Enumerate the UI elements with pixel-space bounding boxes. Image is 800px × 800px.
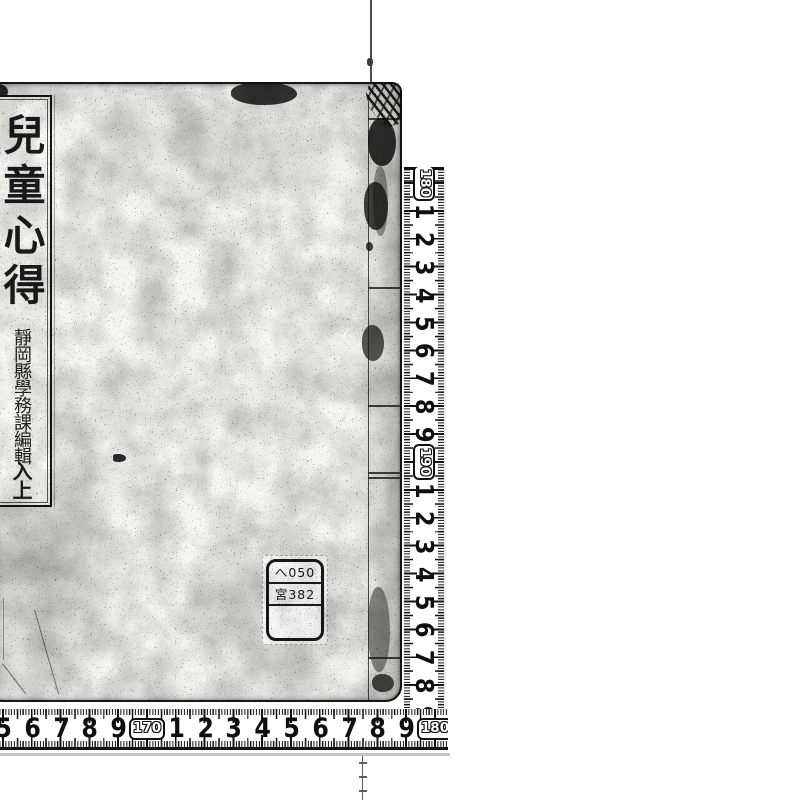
ink-smudge	[372, 674, 394, 692]
ink-smudge	[362, 325, 384, 361]
ruler-number: 2	[409, 505, 439, 530]
ruler-number: 180	[413, 167, 435, 201]
stitch-line	[368, 477, 402, 479]
scan-page: 兒童心得 靜岡縣學務課編輯 入上 へ050 宮382	[0, 0, 800, 800]
vertical-ruler: 180123456789190123456789	[404, 167, 444, 741]
registration-tick	[359, 762, 367, 764]
registration-tick	[359, 776, 367, 778]
ruler-number: 8	[363, 714, 391, 744]
ruler-number: 3	[409, 533, 439, 558]
ruler-number: 6	[409, 617, 439, 642]
ink-spot	[113, 454, 126, 462]
ruler-number: 4	[409, 561, 439, 586]
call-number-frame: へ050 宮382	[266, 559, 324, 641]
crease-line	[2, 663, 26, 694]
ruler-number: 4	[409, 282, 439, 307]
ruler-number: 2	[191, 714, 219, 744]
ruler-number: 6	[409, 338, 439, 363]
call-number-line2: 宮382	[269, 584, 321, 606]
book-cover: 兒童心得 靜岡縣學務課編輯 入上 へ050 宮382	[0, 82, 402, 702]
ruler-number: 5	[0, 714, 17, 744]
ink-smudge	[368, 587, 390, 672]
stain-patch	[54, 92, 364, 212]
crease-line	[34, 610, 60, 695]
ruler-number: 5	[409, 310, 439, 335]
stitch-line	[368, 405, 402, 407]
ruler-shadow-line	[0, 753, 450, 756]
imprint-text: 靜岡縣學務課編輯	[12, 328, 30, 464]
title-text: 兒童心得	[0, 113, 42, 313]
scan-noise-texture	[0, 82, 402, 702]
ruler-number: 6	[306, 714, 334, 744]
ruler-number: 8	[75, 714, 103, 744]
ruler-number: 8	[409, 394, 439, 419]
corner-scribble	[366, 82, 402, 128]
cover-fold-line	[54, 95, 55, 507]
call-number-line1: へ050	[269, 562, 321, 584]
call-number-line3	[269, 606, 321, 638]
crease-line	[3, 598, 4, 660]
ruler-number: 180	[417, 718, 448, 740]
registration-tick	[359, 790, 367, 792]
ruler-number: 1	[162, 714, 190, 744]
title-slip-frame: 兒童心得 靜岡縣學務課編輯 入上	[0, 99, 48, 503]
stitch-line	[368, 287, 402, 289]
ink-smudge	[364, 182, 388, 230]
registration-line-bottom	[362, 755, 363, 800]
call-number-label: へ050 宮382	[262, 555, 328, 645]
stitch-line	[368, 472, 402, 474]
ruler-number: 9	[409, 421, 439, 446]
ruler-number: 3	[409, 254, 439, 279]
registration-mark	[367, 58, 373, 66]
ruler-numbers: 56789170123456789180	[0, 709, 448, 750]
ruler-number: 5	[277, 714, 305, 744]
ruler-number: 190	[413, 444, 435, 480]
horizontal-ruler: 56789170123456789180	[0, 709, 448, 750]
ruler-numbers: 180123456789190123456789	[404, 167, 444, 741]
ink-smudge	[231, 82, 297, 105]
ink-smudge	[366, 242, 373, 251]
volume-mark: 入上	[11, 461, 31, 499]
ruler-number: 170	[129, 718, 165, 740]
registration-line-top	[370, 0, 372, 83]
ruler-number: 1	[409, 477, 439, 502]
ruler-number: 1	[409, 198, 439, 223]
ruler-number: 4	[248, 714, 276, 744]
ruler-number: 6	[18, 714, 46, 744]
ruler-number: 7	[409, 366, 439, 391]
ruler-number: 7	[409, 645, 439, 670]
ruler-number: 8	[409, 673, 439, 698]
ruler-number: 3	[219, 714, 247, 744]
ruler-number: 2	[409, 226, 439, 251]
ruler-number: 7	[47, 714, 75, 744]
title-slip: 兒童心得 靜岡縣學務課編輯 入上	[0, 95, 52, 507]
ruler-number: 5	[409, 589, 439, 614]
ruler-number: 7	[335, 714, 363, 744]
